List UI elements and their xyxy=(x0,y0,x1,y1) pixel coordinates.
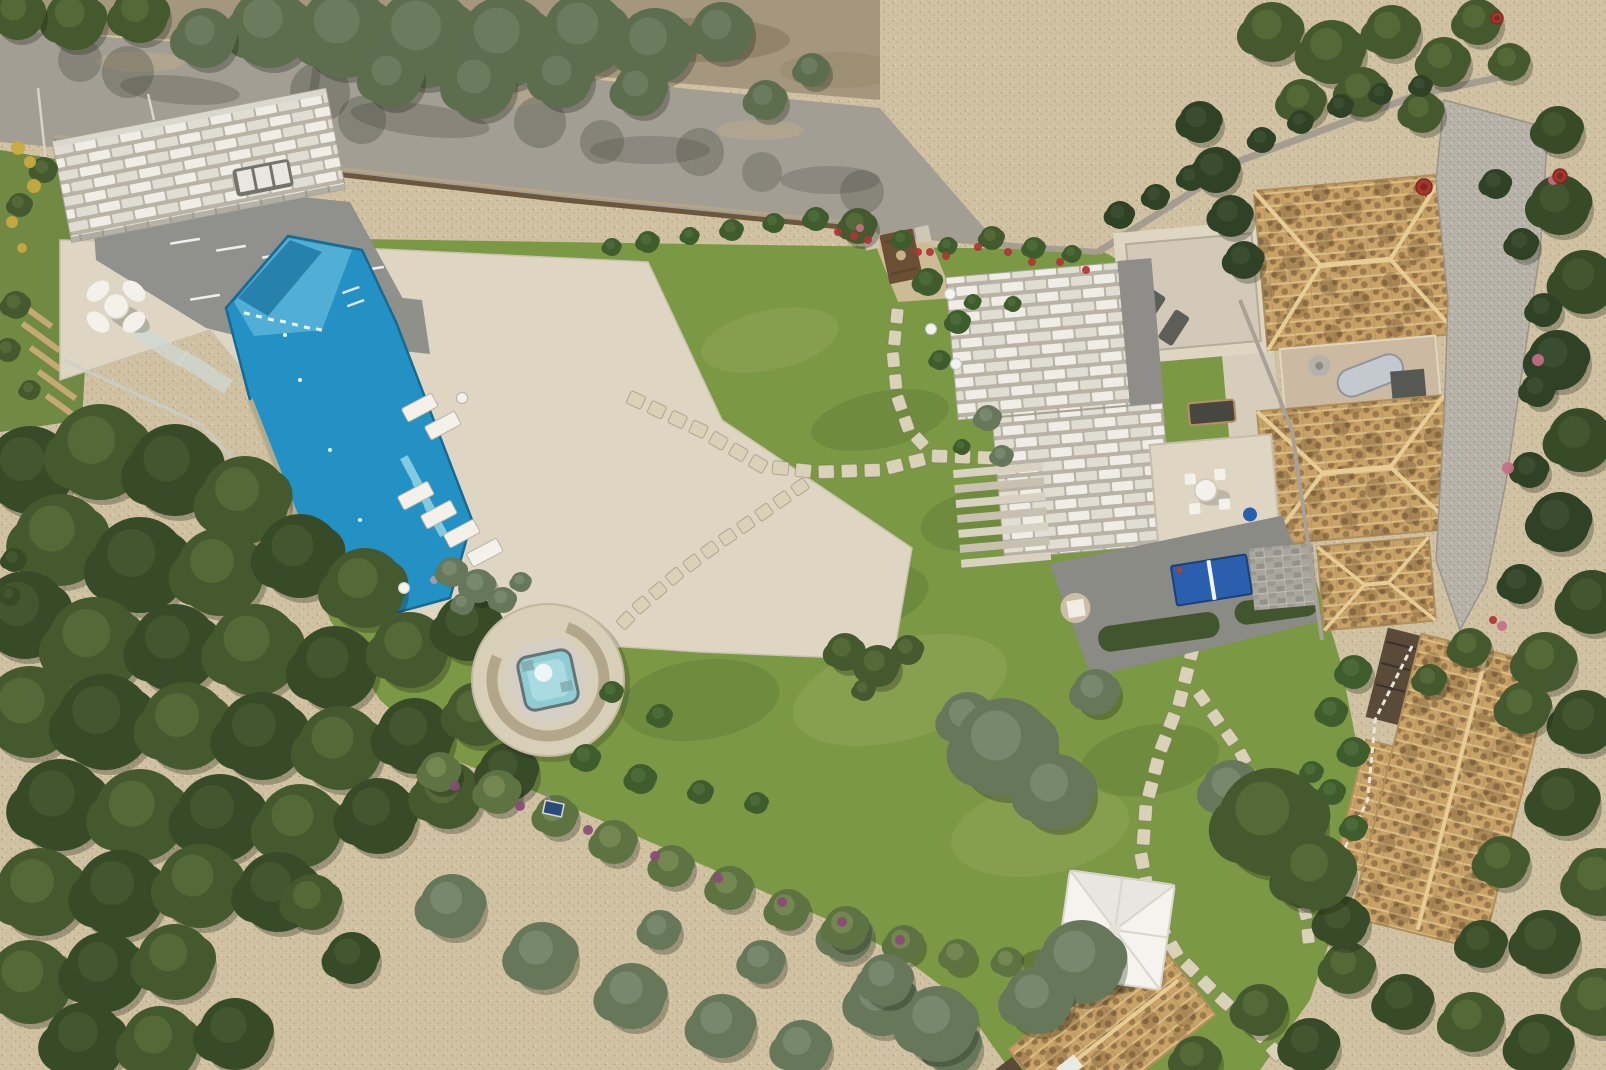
stepping-stone xyxy=(1138,805,1153,822)
balcony-bench xyxy=(1188,399,1236,425)
red-pot xyxy=(1491,12,1503,24)
hip-roof-annex-small xyxy=(1317,537,1436,630)
flower-cluster xyxy=(515,801,525,811)
flower-cluster xyxy=(850,232,858,240)
stepping-stone xyxy=(772,460,789,475)
flower-cluster xyxy=(856,224,864,232)
flower-cluster xyxy=(27,179,41,193)
flower-cluster xyxy=(650,851,660,861)
flower-cluster xyxy=(974,243,982,251)
flower-cluster xyxy=(583,825,593,835)
globe-lamp xyxy=(951,359,962,370)
flower-cluster xyxy=(11,141,25,155)
red-pot xyxy=(1553,169,1567,183)
flower-cluster xyxy=(895,935,905,945)
flower-cluster xyxy=(450,781,460,791)
stepping-stone xyxy=(841,464,857,478)
flower-cluster xyxy=(834,228,842,236)
flower-cluster xyxy=(17,243,27,253)
pergola-wing-north xyxy=(946,263,1130,419)
flower-cluster xyxy=(926,248,934,256)
globe-lamp xyxy=(926,324,937,335)
stepping-stone xyxy=(931,449,947,463)
flower-cluster xyxy=(1082,266,1090,274)
flower-cluster xyxy=(914,248,922,256)
stepping-stone xyxy=(818,465,834,479)
flower-cluster xyxy=(24,156,36,168)
flower-cluster xyxy=(1056,258,1064,266)
flower-cluster xyxy=(1497,621,1507,631)
hot-tub xyxy=(516,648,580,712)
globe-lamp xyxy=(945,289,956,300)
stepping-stone xyxy=(1136,828,1151,845)
red-pot xyxy=(1416,179,1432,195)
flower-cluster xyxy=(942,252,950,260)
stepping-stone xyxy=(1134,852,1150,870)
flower-cluster xyxy=(1489,616,1497,624)
flower-cluster xyxy=(864,236,872,244)
stepping-stone xyxy=(886,352,900,368)
hip-roof-north xyxy=(1254,174,1457,350)
flower-cluster xyxy=(1502,462,1514,474)
stepping-stone xyxy=(889,374,903,390)
flower-cluster xyxy=(6,216,18,228)
flower-cluster xyxy=(1004,248,1012,256)
flower-cluster xyxy=(1028,258,1036,266)
stepping-stone xyxy=(795,463,812,478)
flower-cluster xyxy=(713,873,723,883)
globe-lamp xyxy=(399,583,410,594)
stepping-stone xyxy=(888,330,902,346)
flower-cluster xyxy=(837,917,847,927)
aerial-photo-canvas xyxy=(0,0,1606,1070)
stepping-stone xyxy=(890,308,904,324)
stepping-stone xyxy=(864,463,880,477)
flower-cluster xyxy=(777,897,787,907)
flower-cluster xyxy=(1532,354,1544,366)
aerial-photo xyxy=(0,0,1606,1070)
